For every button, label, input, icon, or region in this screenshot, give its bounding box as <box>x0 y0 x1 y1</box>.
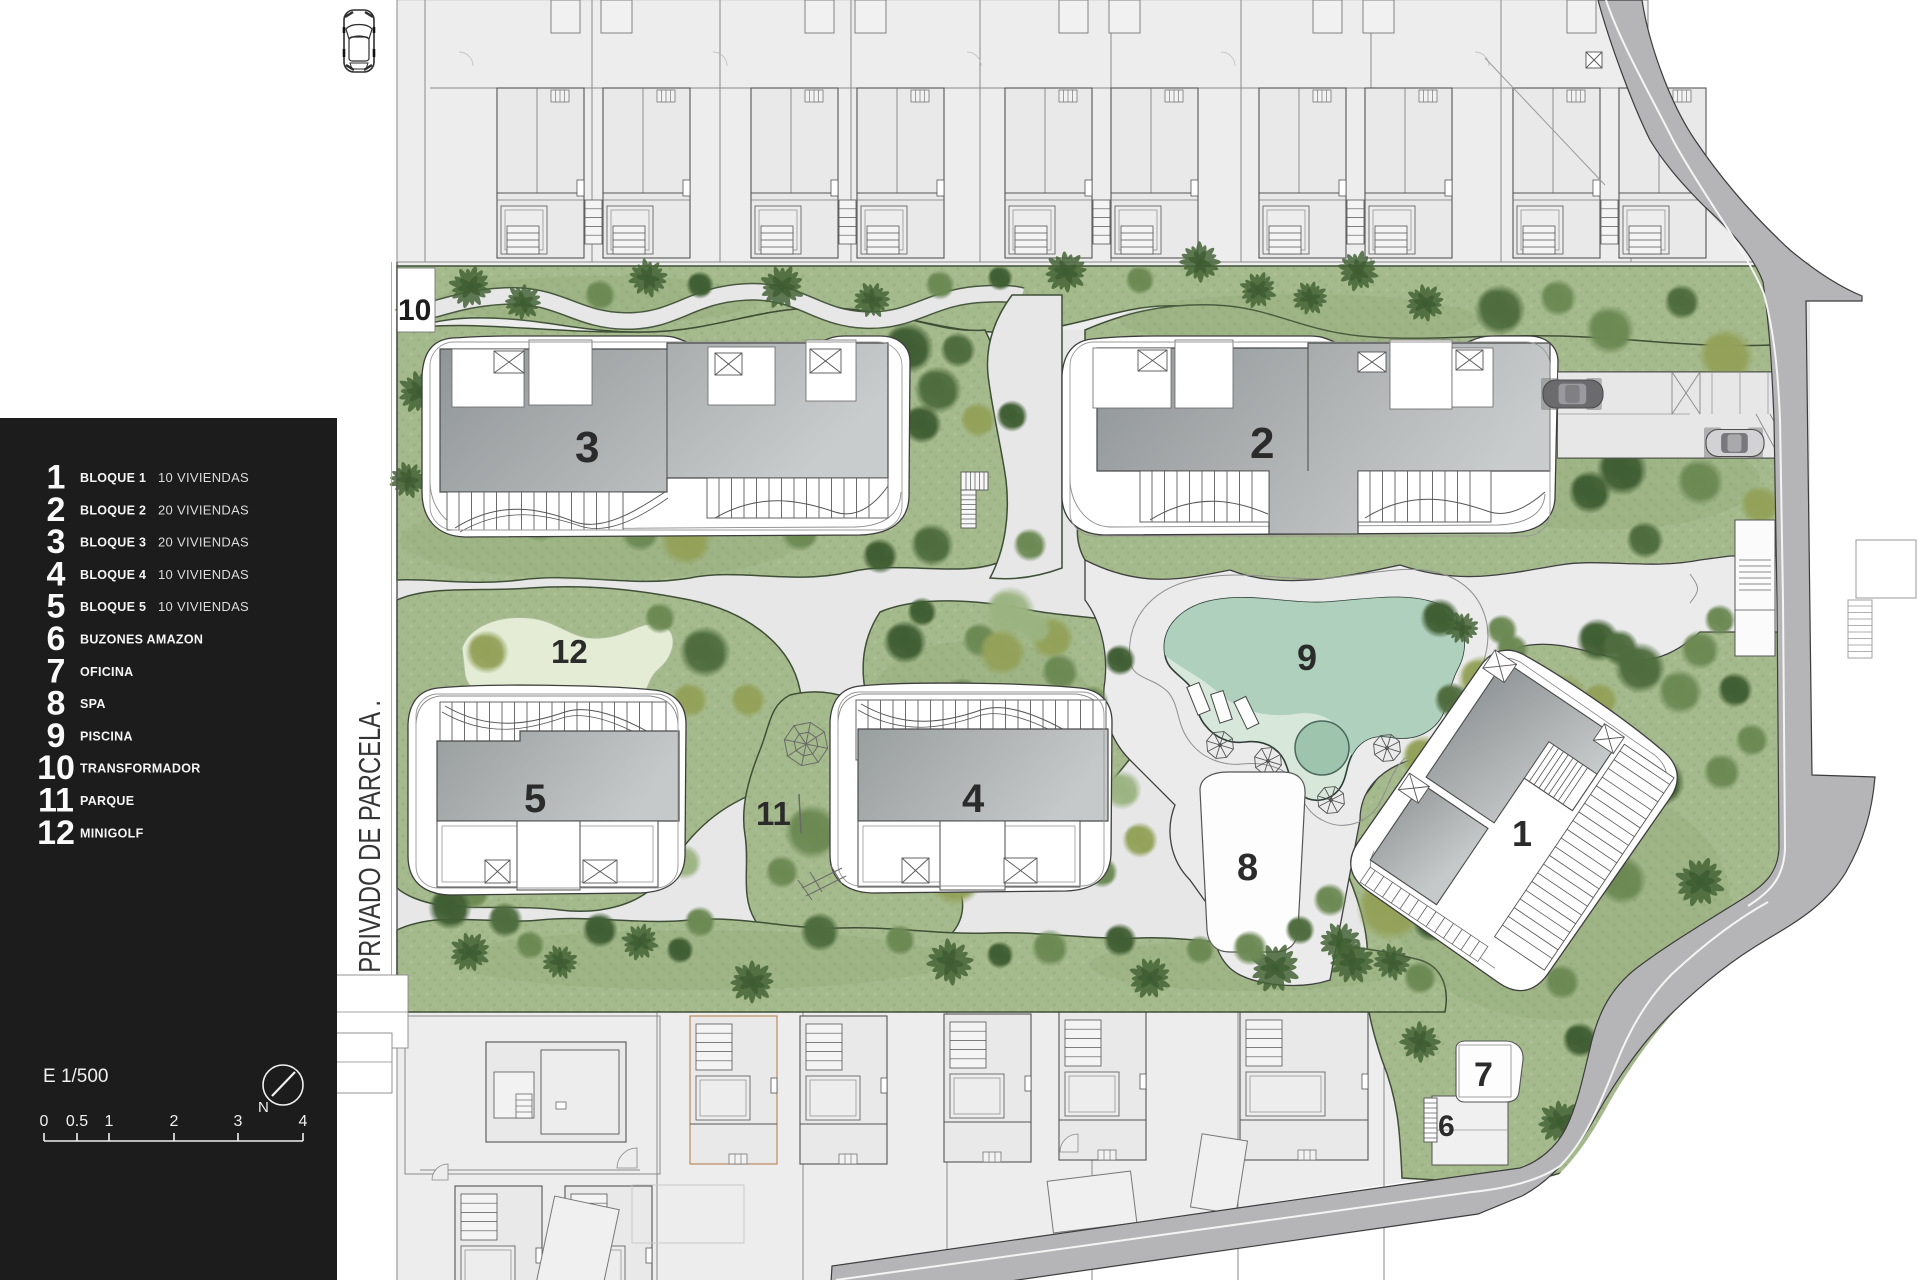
svg-text:4: 4 <box>299 1113 308 1130</box>
svg-text:3: 3 <box>575 423 599 472</box>
svg-text:BLOQUE 1: BLOQUE 1 <box>80 471 146 485</box>
svg-text:5: 5 <box>524 777 546 821</box>
svg-text:0.5: 0.5 <box>66 1113 88 1130</box>
svg-text:6: 6 <box>1438 1110 1455 1143</box>
svg-text:OFICINA: OFICINA <box>80 665 134 679</box>
svg-text:10 VIVIENDAS: 10 VIVIENDAS <box>158 470 249 485</box>
svg-text:TRANSFORMADOR: TRANSFORMADOR <box>80 762 201 776</box>
svg-text:7: 7 <box>1474 1056 1493 1094</box>
svg-text:20 VIVIENDAS: 20 VIVIENDAS <box>158 502 249 517</box>
svg-text:SPA: SPA <box>80 697 106 711</box>
svg-text:2: 2 <box>170 1113 179 1130</box>
svg-text:1: 1 <box>1512 813 1532 854</box>
svg-text:BLOQUE 4: BLOQUE 4 <box>80 568 146 582</box>
svg-text:0: 0 <box>40 1113 49 1130</box>
svg-text:BUZONES AMAZON: BUZONES AMAZON <box>80 633 203 647</box>
svg-text:11: 11 <box>756 795 791 832</box>
svg-text:MINIGOLF: MINIGOLF <box>80 826 144 840</box>
svg-text:2: 2 <box>1250 419 1274 468</box>
svg-text:20 VIVIENDAS: 20 VIVIENDAS <box>158 535 249 550</box>
svg-text:12: 12 <box>37 814 75 852</box>
svg-text:BLOQUE 3: BLOQUE 3 <box>80 536 146 550</box>
svg-text:8: 8 <box>1237 847 1258 889</box>
svg-text:PARQUE: PARQUE <box>80 794 134 808</box>
svg-text:BLOQUE 5: BLOQUE 5 <box>80 600 146 614</box>
svg-text:10 VIVIENDAS: 10 VIVIENDAS <box>158 567 249 582</box>
svg-text:10 VIVIENDAS: 10 VIVIENDAS <box>158 599 249 614</box>
svg-text:N: N <box>258 1099 269 1116</box>
svg-text:9: 9 <box>1297 637 1317 678</box>
svg-text:10: 10 <box>398 294 431 327</box>
svg-text:4: 4 <box>962 777 985 821</box>
svg-text:1: 1 <box>105 1113 114 1130</box>
svg-text:3: 3 <box>234 1113 243 1130</box>
svg-text:E 1/500: E 1/500 <box>43 1066 109 1087</box>
svg-text:BLOQUE 2: BLOQUE 2 <box>80 503 146 517</box>
svg-text:12: 12 <box>551 633 588 670</box>
svg-text:PISCINA: PISCINA <box>80 729 133 743</box>
